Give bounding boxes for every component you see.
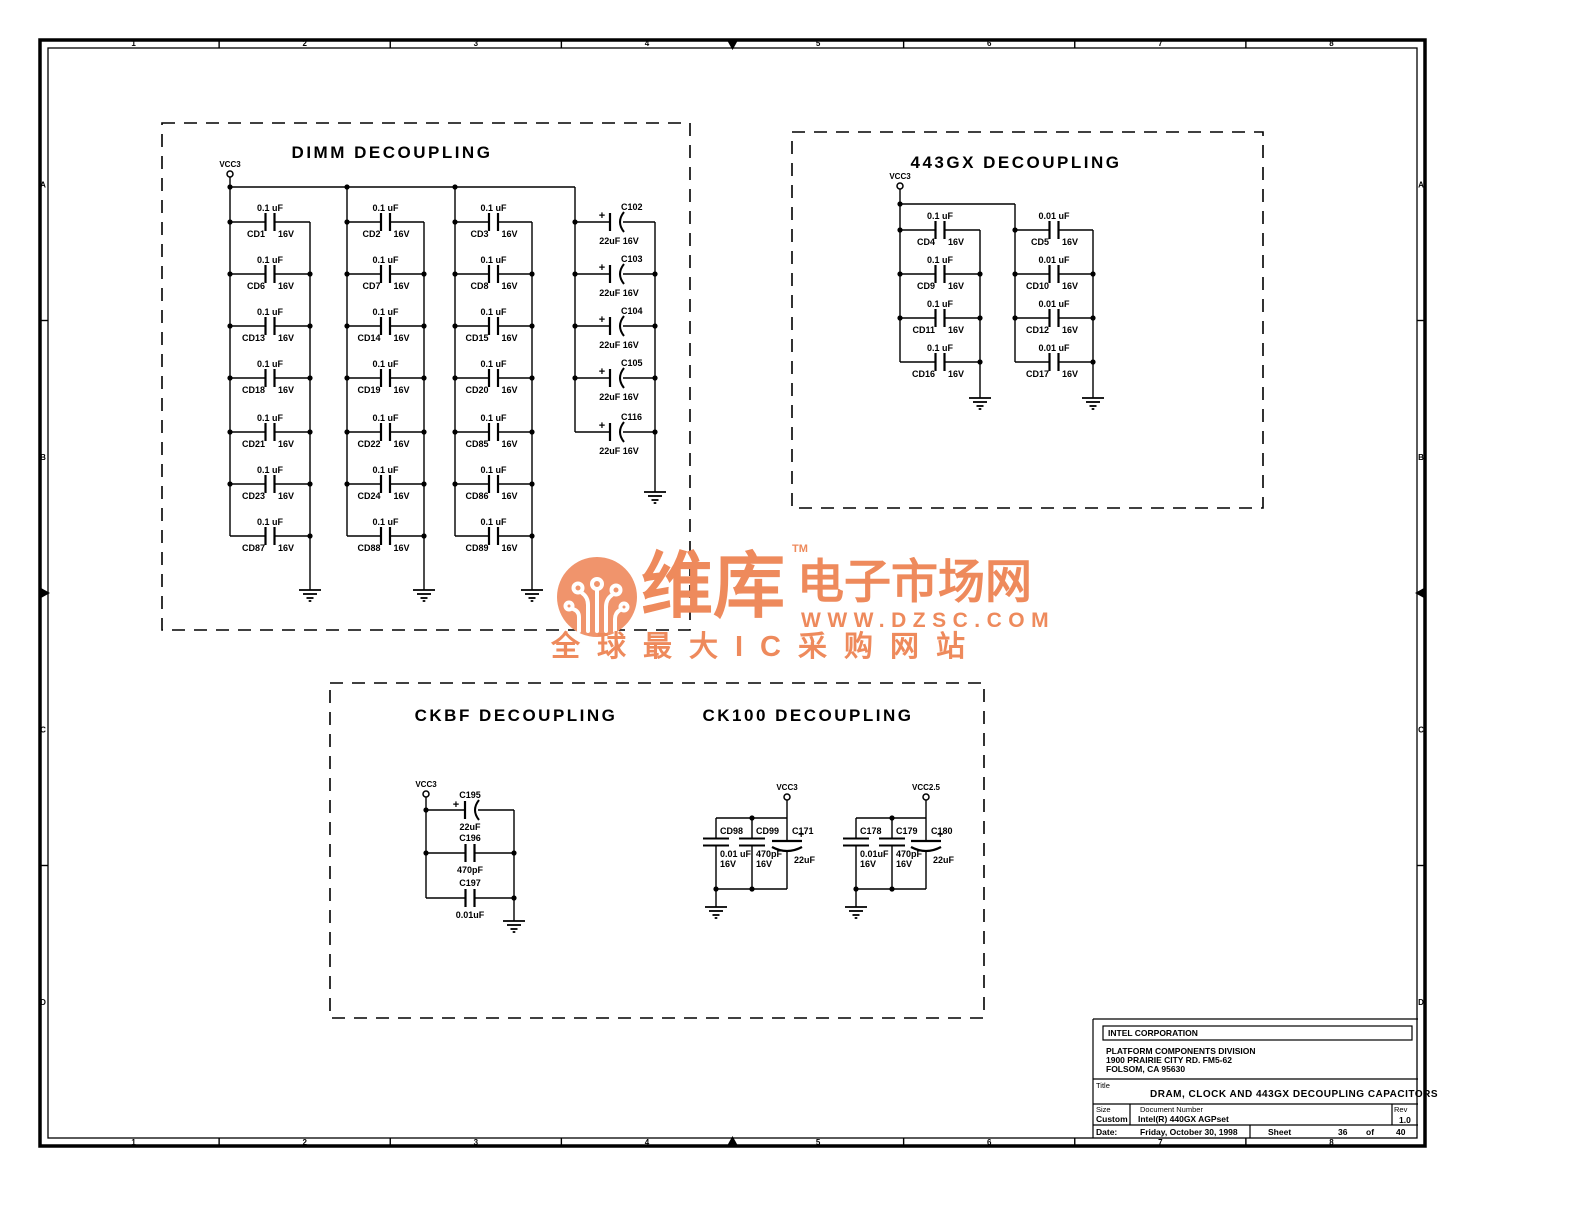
label: 22uF 16V [599, 446, 639, 456]
sheet-total: 40 [1396, 1127, 1406, 1137]
label: 16V [1062, 369, 1078, 379]
label: VCC3 [415, 780, 437, 789]
label: 16V [394, 333, 410, 343]
rev-label: Rev [1394, 1105, 1408, 1114]
power-pin [784, 794, 790, 800]
frame-col-label: 5 [816, 1138, 821, 1147]
capacitor-CD88: 0.1 uFCD8816V [347, 517, 424, 553]
label: 16V [278, 229, 294, 239]
label: 16V [394, 543, 410, 553]
frame-col-label: 3 [474, 1138, 479, 1147]
capacitor-CD86: 0.1 uFCD8616V [455, 465, 532, 501]
junction-dot [529, 323, 534, 328]
label: C116 [621, 412, 642, 422]
label: 0.1 uF [257, 255, 284, 265]
label: CD14 [357, 333, 380, 343]
label: C178 [860, 826, 882, 836]
label: 0.1 uF [927, 299, 954, 309]
label: C102 [621, 202, 643, 212]
capacitor-CD21: 0.1 uFCD2116V [230, 413, 310, 449]
frame-col-label: 4 [645, 39, 650, 48]
label: 0.1 uF [480, 255, 507, 265]
label: CD98 [720, 826, 743, 836]
rev-value: 1.0 [1399, 1115, 1411, 1125]
junction-dot [307, 323, 312, 328]
capacitor-CD16: 0.1 uFCD1616V [900, 343, 980, 379]
label: 16V [394, 229, 410, 239]
junction-dot [529, 481, 534, 486]
frame-col-label: 4 [645, 1138, 650, 1147]
dimm-section-title: DIMM DECOUPLING [292, 143, 493, 162]
capacitor-CD19: 0.1 uFCD1916V [347, 359, 424, 395]
capacitor-C105: C105+22uF 16V [575, 358, 655, 402]
schematic-page: 1122334455667788AABBCCDD DIMM DECOUPLING… [0, 0, 1584, 1223]
junction-dot [307, 429, 312, 434]
gx-column-1: 0.1 uFCD416V0.1 uFCD916V0.1 uFCD1116V0.1… [897, 204, 991, 409]
size-value: Custom [1096, 1114, 1128, 1124]
power-symbol: VCC3 [776, 783, 798, 800]
label: 0.01 uF [1038, 211, 1070, 221]
label: 0.1 uF [257, 465, 284, 475]
junction-dot [344, 481, 349, 486]
junction-dot [452, 481, 457, 486]
label: 0.1 uF [927, 255, 954, 265]
label: VCC3 [219, 160, 241, 169]
label: 16V [502, 543, 518, 553]
capacitor-CD17: 0.01 uFCD1716V [1015, 343, 1093, 379]
date-label: Date: [1096, 1127, 1117, 1137]
label: 0.1 uF [257, 359, 284, 369]
label: CD20 [465, 385, 488, 395]
ck100-group-1: VCC3CD980.01 uF16VCD99470pF16V+C17122uF [703, 783, 816, 918]
label: 22uF [459, 822, 481, 832]
capacitor-CD13: 0.1 uFCD1316V [230, 307, 310, 343]
label: VCC3 [776, 783, 798, 792]
junction-dot [529, 429, 534, 434]
label: + [599, 314, 605, 326]
label: + [453, 799, 459, 811]
capacitor-CD89: 0.1 uFCD8916V [455, 517, 532, 553]
junction-dot [897, 271, 902, 276]
label: 0.01uF [456, 910, 485, 920]
capacitor-CD20: 0.1 uFCD2016V [455, 359, 532, 395]
watermark-market: 电子市场网 [797, 558, 1032, 605]
junction-dot [344, 375, 349, 380]
label: 16V [1062, 281, 1078, 291]
frame-row-label: B [1418, 453, 1424, 462]
label: 0.1 uF [257, 517, 284, 527]
junction-dot [227, 429, 232, 434]
label: 16V [948, 369, 964, 379]
label: CD86 [465, 491, 488, 501]
label: 16V [720, 859, 736, 869]
capacitor-C116: C116+22uF 16V [575, 412, 655, 456]
label: 0.01 uF [720, 849, 752, 859]
capacitor-CD24: 0.1 uFCD2416V [347, 465, 424, 501]
label: 16V [502, 281, 518, 291]
frame-col-label: 1 [131, 39, 136, 48]
label: + [599, 262, 605, 274]
sheet-label: Sheet [1268, 1127, 1291, 1137]
junction-dot [344, 219, 349, 224]
junction-dot [652, 271, 657, 276]
label: C103 [621, 254, 643, 264]
label: C171 [792, 826, 814, 836]
watermark-tm: TM [792, 544, 808, 555]
junction-dot [1012, 315, 1017, 320]
label: 0.1 uF [480, 465, 507, 475]
label: CD19 [357, 385, 380, 395]
label: 22uF 16V [599, 340, 639, 350]
dimm-column-1: 0.1 uFCD116V0.1 uFCD616V0.1 uFCD1316V0.1… [227, 187, 321, 601]
power-symbol: VCC2.5 [912, 783, 941, 800]
junction-dot [572, 219, 577, 224]
dimm-bulk-column: C102+22uF 16VC103+22uF 16VC104+22uF 16VC… [572, 187, 666, 503]
junction-dot [307, 375, 312, 380]
junction-dot [227, 375, 232, 380]
junction-dot [421, 271, 426, 276]
sheet-number: 36 [1338, 1127, 1348, 1137]
frame-col-label: 3 [474, 39, 479, 48]
label: + [599, 420, 605, 432]
power-pin [227, 171, 233, 177]
sheet-title: DRAM, CLOCK AND 443GX DECOUPLING CAPACIT… [1150, 1089, 1438, 1100]
capacitor-C178: C1780.01uF16V [843, 818, 889, 889]
label: CD23 [242, 491, 265, 501]
label: 0.1 uF [372, 203, 399, 213]
label: CD13 [242, 333, 265, 343]
label: 22uF 16V [599, 392, 639, 402]
junction-dot [897, 227, 902, 232]
frame-col-label: 7 [1158, 39, 1163, 48]
capacitor-CD12: 0.01 uFCD1216V [1015, 299, 1093, 335]
label: CD8 [470, 281, 488, 291]
label: C195 [459, 790, 481, 800]
junction-dot [344, 429, 349, 434]
capacitor-C196: C196470pF [426, 833, 514, 875]
gx-circuit: VCC30.1 uFCD416V0.1 uFCD916V0.1 uFCD1116… [889, 172, 1104, 409]
label: CD89 [465, 543, 488, 553]
label: 0.1 uF [372, 465, 399, 475]
label: 16V [502, 385, 518, 395]
label: 0.01 uF [1038, 299, 1070, 309]
label: 0.01 uF [1038, 255, 1070, 265]
label: 16V [948, 281, 964, 291]
label: 16V [394, 385, 410, 395]
ck100-group-2: VCC2.5C1780.01uF16VC179470pF16V+C18022uF [843, 783, 955, 918]
label: 16V [394, 439, 410, 449]
ck100-section-title: CK100 DECOUPLING [703, 706, 914, 725]
capacitor-CD14: 0.1 uFCD1416V [347, 307, 424, 343]
capacitor-CD6: 0.1 uFCD616V [230, 255, 310, 291]
junction-dot [572, 323, 577, 328]
label: CD10 [1026, 281, 1049, 291]
label: CD88 [357, 543, 380, 553]
junction-dot [977, 359, 982, 364]
junction-dot [452, 219, 457, 224]
label: C179 [896, 826, 918, 836]
label: + [599, 366, 605, 378]
label: VCC2.5 [912, 783, 941, 792]
power-symbol: VCC3 [889, 172, 911, 189]
junction-dot [227, 219, 232, 224]
frame-row-label: D [1418, 998, 1424, 1007]
label: 16V [502, 229, 518, 239]
junction-dot [421, 429, 426, 434]
gx-section-box [792, 132, 1263, 508]
power-symbol: VCC3 [219, 160, 241, 177]
dimm-column-2: 0.1 uFCD216V0.1 uFCD716V0.1 uFCD1416V0.1… [344, 187, 435, 601]
label: 16V [948, 325, 964, 335]
schematic-sheet: 1122334455667788AABBCCDD DIMM DECOUPLING… [0, 0, 1584, 1223]
label: CD24 [357, 491, 380, 501]
watermark-url: WWW.DZSC.COM [801, 610, 1055, 631]
capacitor-CD5: 0.01 uFCD516V [1015, 211, 1093, 247]
label: 0.1 uF [257, 203, 284, 213]
capacitor-CD23: 0.1 uFCD2316V [230, 465, 310, 501]
label: 0.1 uF [480, 413, 507, 423]
power-pin [897, 183, 903, 189]
junction-dot [452, 429, 457, 434]
frame-row-label: A [1418, 180, 1424, 189]
label: C105 [621, 358, 643, 368]
junction-dot [529, 271, 534, 276]
power-pin [923, 794, 929, 800]
capacitor-CD98: CD980.01 uF16V [703, 818, 752, 889]
label: CD1 [247, 229, 265, 239]
doc-number-label: Document Number [1140, 1105, 1203, 1114]
label: CD87 [242, 543, 265, 553]
junction-dot [572, 375, 577, 380]
junction-dot [652, 375, 657, 380]
doc-number-value: Intel(R) 440GX AGPset [1138, 1114, 1229, 1124]
junction-dot [307, 271, 312, 276]
label: 0.1 uF [480, 203, 507, 213]
label: 16V [502, 491, 518, 501]
label: 16V [1062, 325, 1078, 335]
capacitor-CD1: 0.1 uFCD116V [230, 203, 310, 239]
label: 16V [896, 859, 912, 869]
label: CD12 [1026, 325, 1049, 335]
label: CD17 [1026, 369, 1049, 379]
frame-col-label: 2 [302, 39, 307, 48]
frame-col-label: 5 [816, 39, 821, 48]
capacitor-CD7: 0.1 uFCD716V [347, 255, 424, 291]
label: 16V [502, 333, 518, 343]
power-symbol: VCC3 [415, 780, 437, 797]
label: 16V [860, 859, 876, 869]
label: 0.1 uF [257, 307, 284, 317]
junction-dot [421, 481, 426, 486]
frame-col-label: 8 [1329, 39, 1334, 48]
capacitor-CD4: 0.1 uFCD416V [900, 211, 980, 247]
label: 0.1 uF [257, 413, 284, 423]
label: 16V [278, 491, 294, 501]
ground-symbol [969, 398, 991, 409]
junction-dot [897, 315, 902, 320]
label: 0.01 uF [1038, 343, 1070, 353]
capacitor-C195: C19522uF+ [426, 790, 514, 832]
frame-row-label: C [1418, 725, 1424, 734]
label: C104 [621, 306, 643, 316]
gx-section-title: 443GX DECOUPLING [911, 153, 1122, 172]
label: 16V [1062, 237, 1078, 247]
capacitor-CD15: 0.1 uFCD1516V [455, 307, 532, 343]
ground-symbol [845, 907, 867, 918]
size-label: Size [1096, 1105, 1111, 1114]
label: CD6 [247, 281, 265, 291]
label: 0.1 uF [372, 517, 399, 527]
ckbf-circuit: VCC3C19522uF+C196470pFC1970.01uF [415, 780, 525, 932]
section-443gx-decoupling: 443GX DECOUPLING VCC30.1 uFCD416V0.1 uFC… [792, 132, 1263, 508]
label: 16V [756, 859, 772, 869]
junction-dot [421, 533, 426, 538]
watermark-brand: 维库 [641, 551, 785, 623]
label: 16V [948, 237, 964, 247]
ground-symbol [503, 921, 525, 932]
capacitor-CD9: 0.1 uFCD916V [900, 255, 980, 291]
capacitor-C103: C103+22uF 16V [575, 254, 655, 298]
junction-dot [652, 429, 657, 434]
ground-symbol [299, 590, 321, 601]
label: CD11 [912, 325, 935, 335]
date-value: Friday, October 30, 1998 [1140, 1127, 1238, 1137]
label: VCC3 [889, 172, 911, 181]
junction-dot [307, 481, 312, 486]
ground-symbol [413, 590, 435, 601]
label: CD99 [756, 826, 779, 836]
junction-dot [977, 315, 982, 320]
frame-col-label: 6 [987, 1138, 992, 1147]
sheet-of-label: of [1366, 1127, 1374, 1137]
dzsc-logo-icon [557, 557, 637, 637]
label: CD16 [912, 369, 935, 379]
frame-row-label: D [40, 998, 46, 1007]
label: 0.1 uF [480, 517, 507, 527]
title-label: Title [1096, 1081, 1110, 1090]
junction-dot [1090, 359, 1095, 364]
label: C180 [931, 826, 953, 836]
section-clock-decoupling: CKBF DECOUPLING CK100 DECOUPLING VCC3C19… [330, 683, 984, 1018]
junction-dot [227, 271, 232, 276]
label: 16V [278, 385, 294, 395]
junction-dot [452, 323, 457, 328]
junction-dot [452, 271, 457, 276]
label: 22uF 16V [599, 288, 639, 298]
label: + [599, 210, 605, 222]
ground-symbol [1082, 398, 1104, 409]
label: C197 [459, 878, 481, 888]
dimm-circuit: VCC30.1 uFCD116V0.1 uFCD616V0.1 uFCD1316… [219, 160, 666, 601]
capacitor-CD87: 0.1 uFCD8716V [230, 517, 310, 553]
power-pin [423, 791, 429, 797]
gx-column-2: 0.01 uFCD516V0.01 uFCD1016V0.01 uFCD1216… [1012, 204, 1104, 409]
ground-symbol [521, 590, 543, 601]
label: CD85 [465, 439, 488, 449]
label: 470pF [457, 865, 484, 875]
label: 0.1 uF [480, 359, 507, 369]
label: CD3 [470, 229, 488, 239]
label: 16V [502, 439, 518, 449]
label: 16V [278, 543, 294, 553]
junction-dot [977, 271, 982, 276]
label: 22uF 16V [599, 236, 639, 246]
label: CD18 [242, 385, 265, 395]
junction-dot [307, 533, 312, 538]
dimm-column-3: 0.1 uFCD316V0.1 uFCD816V0.1 uFCD1516V0.1… [452, 187, 543, 601]
capacitor-CD18: 0.1 uFCD1816V [230, 359, 310, 395]
watermark-tagline: 全球最大IC采购网站 [551, 633, 982, 662]
label: 16V [394, 281, 410, 291]
frame-row-label: B [40, 453, 46, 462]
frame-col-label: 2 [302, 1138, 307, 1147]
capacitor-CD3: 0.1 uFCD316V [455, 203, 532, 239]
junction-dot [1090, 271, 1095, 276]
label: CD5 [1031, 237, 1049, 247]
frame-col-label: 1 [131, 1138, 136, 1147]
label: 0.1 uF [372, 307, 399, 317]
label: 0.01uF [860, 849, 889, 859]
label: C196 [459, 833, 481, 843]
label: 22uF [933, 855, 955, 865]
label: 0.1 uF [372, 359, 399, 369]
junction-dot [1090, 315, 1095, 320]
title-block: INTEL CORPORATION PLATFORM COMPONENTS DI… [1093, 1019, 1438, 1138]
junction-dot [227, 323, 232, 328]
label: 0.1 uF [927, 211, 954, 221]
ckbf-section-title: CKBF DECOUPLING [415, 706, 618, 725]
ground-symbol [644, 492, 666, 503]
label: CD22 [357, 439, 380, 449]
frame-row-label: C [40, 725, 46, 734]
junction-dot [227, 481, 232, 486]
junction-dot [1012, 227, 1017, 232]
label: 16V [278, 281, 294, 291]
label: 16V [278, 333, 294, 343]
junction-dot [572, 271, 577, 276]
capacitor-CD11: 0.1 uFCD1116V [900, 299, 980, 335]
label: 0.1 uF [480, 307, 507, 317]
junction-dot [652, 323, 657, 328]
label: 0.1 uF [372, 413, 399, 423]
capacitor-CD10: 0.01 uFCD1016V [1015, 255, 1093, 291]
capacitor-CD2: 0.1 uFCD216V [347, 203, 424, 239]
label: 0.1 uF [372, 255, 399, 265]
label: CD2 [362, 229, 380, 239]
capacitor-C102: C102+22uF 16V [575, 202, 655, 246]
ck100-circuit: VCC3CD980.01 uF16VCD99470pF16V+C17122uFV… [703, 783, 955, 918]
label: 16V [278, 439, 294, 449]
junction-dot [344, 323, 349, 328]
label: 16V [394, 491, 410, 501]
junction-dot [529, 533, 534, 538]
section-dimm-decoupling: DIMM DECOUPLING VCC30.1 uFCD116V0.1 uFCD… [162, 123, 690, 630]
capacitor-CD22: 0.1 uFCD2216V [347, 413, 424, 449]
ground-symbol [705, 907, 727, 918]
frame-row-label: A [40, 180, 46, 189]
label: CD4 [917, 237, 935, 247]
label: 0.1 uF [927, 343, 954, 353]
label: CD7 [362, 281, 380, 291]
capacitor-C104: C104+22uF 16V [575, 306, 655, 350]
junction-dot [529, 375, 534, 380]
capacitor-CD8: 0.1 uFCD816V [455, 255, 532, 291]
frame-col-label: 6 [987, 39, 992, 48]
junction-dot [452, 375, 457, 380]
junction-dot [421, 375, 426, 380]
label: 22uF [794, 855, 816, 865]
capacitor-C197: C1970.01uF [426, 878, 514, 920]
